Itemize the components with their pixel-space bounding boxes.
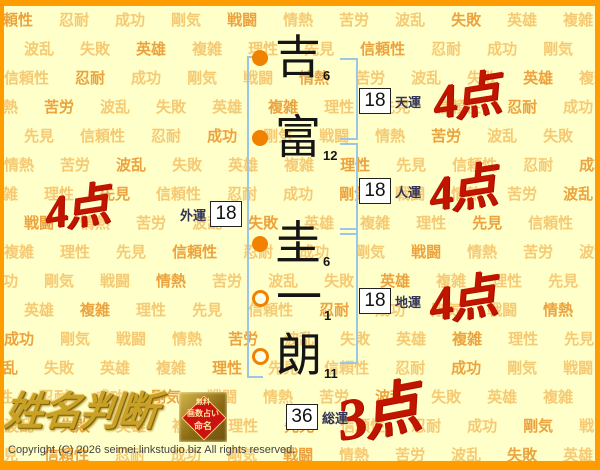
background-word: 波乱 <box>116 157 146 174</box>
background-word: 情熱 <box>156 273 186 290</box>
background-word: 情熱 <box>4 157 34 174</box>
name-character-row: 一1 <box>252 270 346 326</box>
background-word: 失敗 <box>44 360 74 377</box>
background-word: 英雄 <box>212 99 242 116</box>
background-word: 複雑 <box>4 244 34 261</box>
background-word: 波乱 <box>24 41 54 58</box>
background-word: 剛気 <box>187 70 217 87</box>
background-word: 先見 <box>24 128 54 145</box>
score-jinun: 4点 <box>423 145 497 224</box>
name-character-row: 圭6 <box>252 216 346 272</box>
score-gaiun: 4点 <box>39 168 110 243</box>
background-word: 剛気 <box>44 273 74 290</box>
frame-bottom <box>0 461 600 470</box>
filled-circle-marker-icon <box>252 236 268 252</box>
background-word: 信頼性 <box>360 41 405 58</box>
name-character-row: 吉6 <box>252 30 346 86</box>
background-word: 失敗 <box>543 128 573 145</box>
background-word: 理性 <box>508 331 538 348</box>
background-word: 複雑 <box>452 331 482 348</box>
stroke-count: 12 <box>323 148 337 163</box>
background-word: 先見 <box>396 157 426 174</box>
name-character-row: 富12 <box>252 110 346 166</box>
background-word: 情熱 <box>375 128 405 145</box>
gaiun-label: 外運 <box>180 205 206 224</box>
site-logo[interactable]: 姓名判断 <box>1 386 179 440</box>
background-word: 失敗 <box>451 12 481 29</box>
background-word: 失敗 <box>80 41 110 58</box>
background-word: 先見 <box>548 273 578 290</box>
jinun-value-box: 18 <box>359 178 391 204</box>
fortune-jinun: 18 人運 <box>359 178 421 204</box>
background-word: 戦闘 <box>116 331 146 348</box>
score-tenun: 4点 <box>427 53 501 132</box>
background-word: 信頼性 <box>528 215 573 232</box>
free-naming-badge[interactable]: 無料 画数占い 命名 <box>179 392 227 442</box>
badge-line1: 無料 <box>179 398 227 408</box>
background-word: 理性 <box>212 360 242 377</box>
fortune-gaiun: 外運 18 <box>180 201 242 227</box>
background-word: 成功 <box>4 331 34 348</box>
background-word: 成功 <box>131 70 161 87</box>
filled-circle-marker-icon <box>252 130 268 146</box>
name-kanji: 一 <box>276 272 322 324</box>
background-word: 情熱 <box>543 302 573 319</box>
name-kanji: 朗 <box>276 330 322 382</box>
open-circle-marker-icon <box>252 348 269 365</box>
fortune-tenun: 18 天運 <box>359 88 421 114</box>
filled-circle-marker-icon <box>252 50 268 66</box>
background-word: 英雄 <box>523 70 553 87</box>
background-word: 苦労 <box>395 447 425 462</box>
background-word: 英雄 <box>24 302 54 319</box>
background-word: 波乱 <box>487 128 517 145</box>
background-word: 成功 <box>115 12 145 29</box>
background-word: 戦闘 <box>563 360 593 377</box>
background-word: 成功 <box>563 99 593 116</box>
background-word: 苦労 <box>44 99 74 116</box>
background-word: 複雑 <box>543 389 573 406</box>
background-word: 剛気 <box>523 418 553 435</box>
background-word: 戦闘 <box>100 273 130 290</box>
background-word: 複雑 <box>156 360 186 377</box>
background-word: 波乱 <box>100 99 130 116</box>
jinun-label: 人運 <box>395 182 421 201</box>
background-word: 忍耐 <box>59 12 89 29</box>
page: 信頼性忍耐成功剛気戦闘情熱苦労波乱失敗英雄複雑理性苦労波乱失敗英雄複雑理性先見信… <box>0 0 600 470</box>
name-kanji: 富 <box>275 112 321 164</box>
frame-right <box>595 0 600 470</box>
background-word: 信頼性 <box>4 70 49 87</box>
background-word: 英雄 <box>507 12 537 29</box>
stroke-count: 6 <box>323 254 330 269</box>
background-word: 情熱 <box>172 331 202 348</box>
background-word: 苦労 <box>212 273 242 290</box>
badge-line2: 画数占い <box>179 408 227 420</box>
background-word: 成功 <box>487 41 517 58</box>
background-word: 失敗 <box>431 389 461 406</box>
background-word: 理性 <box>60 244 90 261</box>
background-word: 苦労 <box>507 186 537 203</box>
background-word: 信頼性 <box>80 128 125 145</box>
background-word: 英雄 <box>100 360 130 377</box>
background-word: 理性 <box>492 273 522 290</box>
background-word: 忍耐 <box>75 70 105 87</box>
background-word: 英雄 <box>136 41 166 58</box>
background-word: 複雑 <box>80 302 110 319</box>
gaiun-value-box: 18 <box>210 201 242 227</box>
stroke-count: 1 <box>324 308 331 323</box>
background-word: 忍耐 <box>523 157 553 174</box>
name-kanji: 圭 <box>275 218 321 270</box>
background-word: 失敗 <box>156 99 186 116</box>
frame-top <box>0 0 600 6</box>
fortune-chiun: 18 地運 <box>359 288 421 314</box>
background-word: 戦闘 <box>227 12 257 29</box>
tenun-value-box: 18 <box>359 88 391 114</box>
background-word: 失敗 <box>172 157 202 174</box>
background-word: 戦闘 <box>411 244 441 261</box>
background-word: 複雑 <box>360 215 390 232</box>
background-word: 信頼性 <box>172 244 217 261</box>
background-word: 先見 <box>116 244 146 261</box>
background-word: 成功 <box>207 128 237 145</box>
background-word: 複雑 <box>563 12 593 29</box>
background-word: 成功 <box>283 186 313 203</box>
chiun-label: 地運 <box>395 292 421 311</box>
copyright-text: Copyright (C) 2026 seimei.linkstudio.biz… <box>8 444 295 456</box>
background-word: 苦労 <box>339 12 369 29</box>
background-word: 先見 <box>564 331 594 348</box>
background-word: 剛気 <box>60 331 90 348</box>
background-word: 情熱 <box>283 12 313 29</box>
background-word: 忍耐 <box>431 41 461 58</box>
background-word: 剛気 <box>355 244 385 261</box>
background-word: 英雄 <box>487 389 517 406</box>
background-word: 理性 <box>228 418 258 435</box>
background-word: 理性 <box>136 302 166 319</box>
background-word: 忍耐 <box>507 99 537 116</box>
frame-left <box>0 0 4 470</box>
background-word: 波乱 <box>451 447 481 462</box>
open-circle-marker-icon <box>252 290 269 307</box>
name-kanji: 吉 <box>275 32 321 84</box>
background-word: 先見 <box>192 302 222 319</box>
background-word: 忍耐 <box>151 128 181 145</box>
background-word: 英雄 <box>396 331 426 348</box>
badge-text: 無料 画数占い 命名 <box>179 398 227 433</box>
tenun-label: 天運 <box>395 92 421 111</box>
background-word: 苦労 <box>523 244 553 261</box>
score-souun: 3点 <box>329 359 423 457</box>
background-word: 苦労 <box>355 70 385 87</box>
chiun-value-box: 18 <box>359 288 391 314</box>
score-chiun: 4点 <box>423 255 497 334</box>
badge-line3: 命名 <box>179 420 227 433</box>
background-word: 波乱 <box>395 12 425 29</box>
souun-value-box: 36 <box>286 404 318 430</box>
background-word: 波乱 <box>563 186 593 203</box>
background-word: 失敗 <box>507 447 537 462</box>
background-word: 成功 <box>451 360 481 377</box>
background-word: 英雄 <box>563 447 593 462</box>
background-word: 成功 <box>467 418 497 435</box>
background-word: 剛気 <box>171 12 201 29</box>
background-word: 複雑 <box>192 41 222 58</box>
background-word: 苦労 <box>136 215 166 232</box>
stroke-count: 6 <box>323 68 330 83</box>
background-word: 剛気 <box>507 360 537 377</box>
background-word: 剛気 <box>543 41 573 58</box>
background-word: 信頼性 <box>0 12 33 29</box>
